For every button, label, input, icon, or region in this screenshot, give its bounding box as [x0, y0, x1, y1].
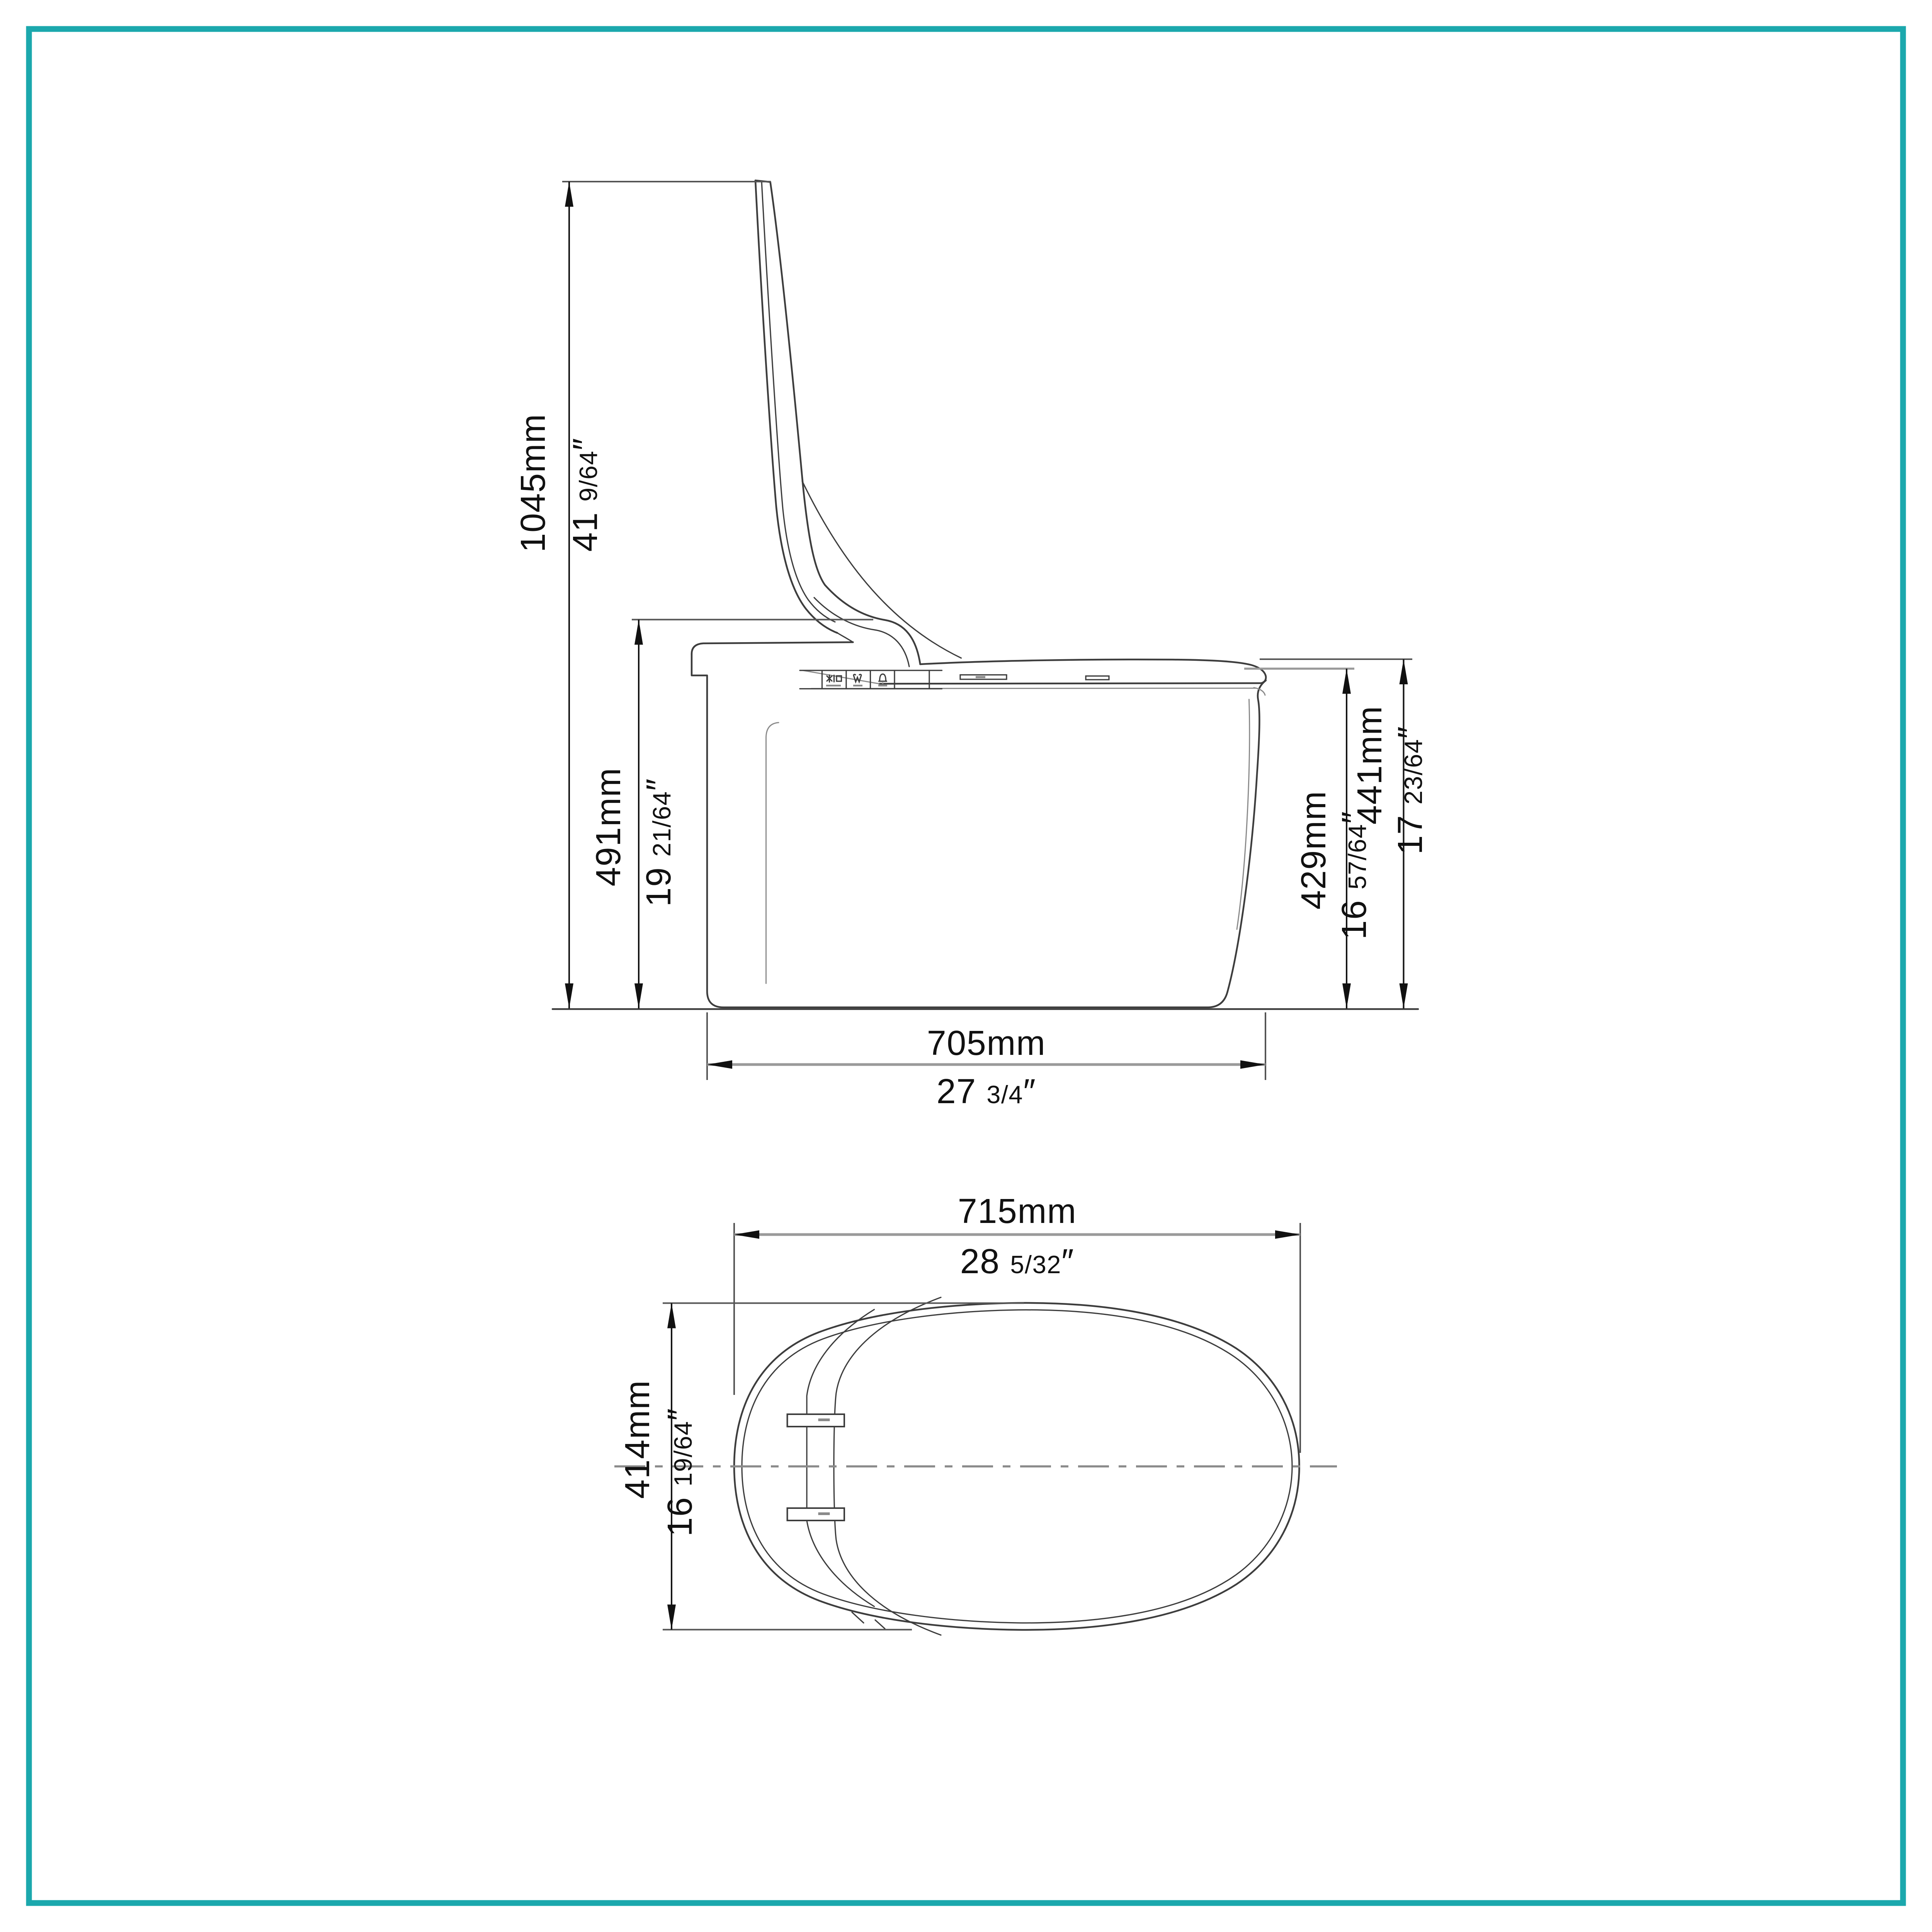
hinge-shroud — [814, 585, 920, 667]
dim-705-mm-label: 705mm — [927, 1024, 1046, 1063]
frame-border — [29, 29, 1903, 1903]
toilet-seat — [803, 660, 1266, 695]
dim-441-inch-label: 17 23/64″ — [1391, 726, 1430, 854]
front-inner-line — [1237, 699, 1250, 929]
drawing-canvas: 1045mm 41 9/64″ 491mm 19 21/64″ 429mm 16… — [0, 0, 1932, 1932]
dim-491-mm-label: 491mm — [589, 767, 628, 886]
dim-429-inch-label: 16 57/64″ — [1335, 811, 1374, 939]
dim-715-inch-label: 28 5/32″ — [960, 1242, 1075, 1281]
body-inner-line — [766, 723, 779, 983]
dim-705-inch-label: 27 3/4″ — [937, 1072, 1036, 1111]
toilet-lid-open — [755, 180, 961, 658]
dim-715-mm-label: 715mm — [958, 1192, 1077, 1231]
dim-441-mm-label: 441mm — [1350, 706, 1389, 825]
dim-1045-inch-label: 41 9/64″ — [566, 437, 605, 552]
dim-491-inch-label: 19 21/64″ — [639, 778, 678, 906]
toilet-dimension-drawing: 1045mm 41 9/64″ 491mm 19 21/64″ 429mm 16… — [0, 0, 1932, 1932]
dim-1045-mm-label: 1045mm — [514, 413, 553, 552]
dim-body-depth: 705mm 27 3/4″ — [707, 1012, 1265, 1111]
top-plan-view: 715mm 28 5/32″ 414mm 16 19/64″ — [614, 1192, 1337, 1635]
toilet-body — [692, 642, 1266, 1007]
seat-latch-mark — [976, 676, 985, 679]
dim-414-inch-label: 16 19/64″ — [661, 1408, 699, 1536]
side-elevation-view: 1045mm 41 9/64″ 491mm 19 21/64″ 429mm 16… — [514, 180, 1430, 1111]
dim-414-mm-label: 414mm — [618, 1380, 657, 1499]
seat-detail — [1086, 676, 1109, 680]
dim-429-mm-label: 429mm — [1294, 791, 1333, 910]
